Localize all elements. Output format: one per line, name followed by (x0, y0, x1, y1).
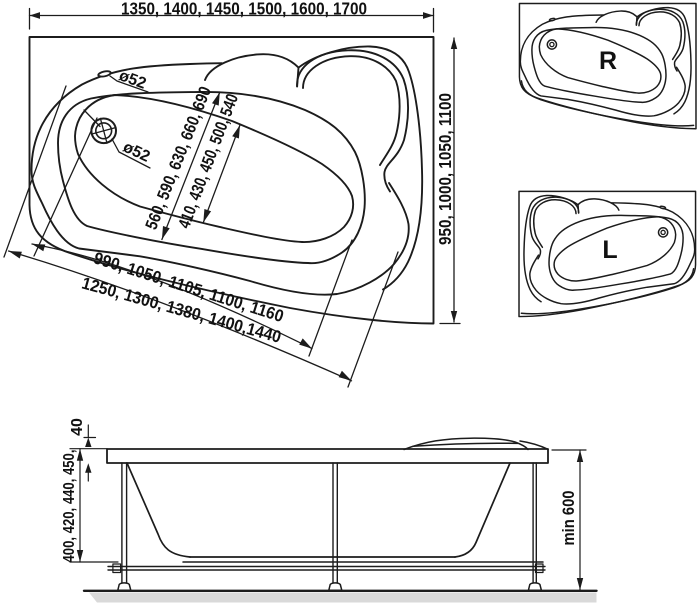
svg-text:ø52: ø52 (117, 67, 149, 92)
svg-text:1350, 1400, 1450, 1500, 1600,: 1350, 1400, 1450, 1500, 1600, 1700 (121, 0, 367, 19)
svg-text:L: L (602, 236, 617, 264)
svg-text:ø52: ø52 (120, 139, 152, 166)
svg-text:min 600: min 600 (560, 491, 578, 546)
svg-text:400, 420, 440, 450,: 400, 420, 440, 450, (61, 450, 78, 563)
svg-text:40: 40 (69, 418, 86, 436)
svg-text:950, 1000, 1050, 1100: 950, 1000, 1050, 1100 (435, 93, 455, 245)
svg-text:R: R (599, 47, 617, 75)
